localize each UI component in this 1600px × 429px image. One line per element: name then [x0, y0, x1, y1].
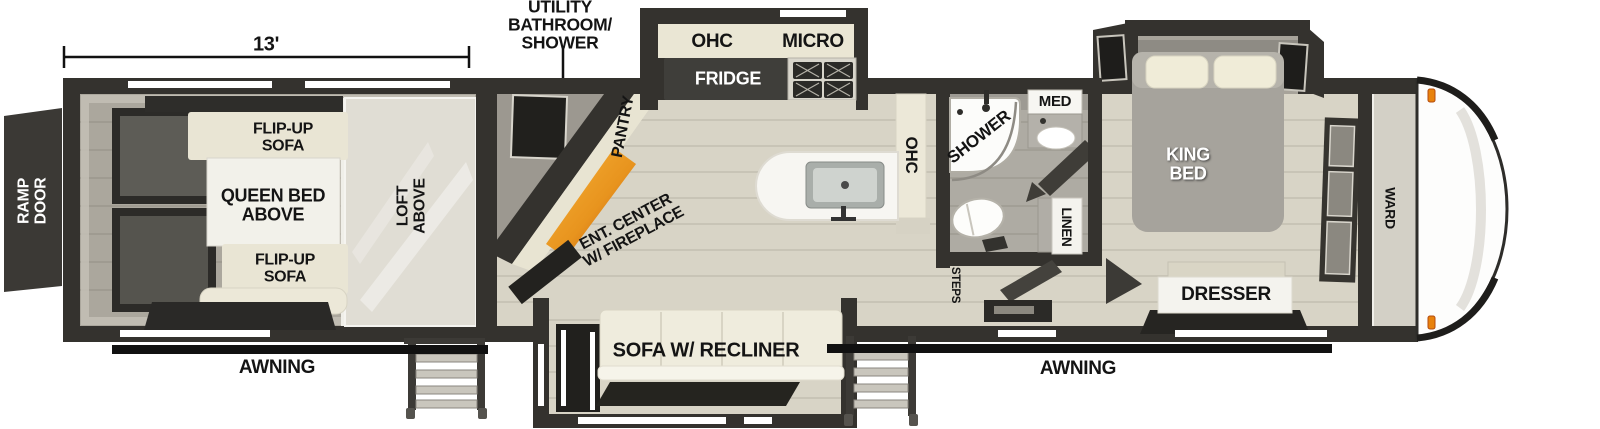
- kitchen-island: [756, 152, 898, 221]
- bedroom-divider-wall: [1088, 78, 1102, 266]
- sofa-shape: [598, 310, 844, 380]
- vanity-sink: [1028, 114, 1082, 149]
- dresser-shape: [1158, 262, 1292, 313]
- floor-hatch: [984, 300, 1052, 322]
- garage-rug: [144, 302, 336, 330]
- stove: [788, 58, 856, 106]
- awning-bar-right: [827, 344, 1332, 353]
- floorplan-drawing: [0, 0, 1600, 429]
- kitchen-counter: [896, 94, 930, 234]
- clearance-light-top: [1428, 89, 1435, 102]
- flip-up-sofa-top-shape: [188, 112, 348, 160]
- living-rug: [596, 382, 800, 406]
- clearance-light-bottom: [1428, 316, 1435, 329]
- king-bed-shape: [1132, 52, 1284, 232]
- bedroom-window: [1319, 117, 1361, 282]
- pillow-left: [1146, 56, 1208, 88]
- rv-floorplan: 13' UTILITY BATHROOM/ SHOWER RAMP DOOR F…: [0, 0, 1600, 429]
- awning-bar-left: [112, 345, 488, 354]
- ohc-micro-cabinet: [658, 24, 854, 58]
- queen-bed-box: [207, 158, 340, 246]
- slideout-window: [556, 324, 600, 412]
- bathroom-wall-left: [936, 78, 950, 268]
- ward-area: [1374, 94, 1418, 326]
- fridge-shape: [664, 58, 788, 100]
- ramp-door: [4, 108, 62, 292]
- slideout-window-slit: [780, 10, 846, 17]
- med-cabinet: [1028, 90, 1082, 114]
- pillow-right: [1214, 56, 1276, 88]
- sofa-slideout: [533, 298, 857, 428]
- front-cap: [1417, 80, 1507, 338]
- bathroom: [936, 78, 1102, 268]
- loft-floor: [341, 98, 476, 326]
- dimension-line: [64, 46, 469, 68]
- garage-divider-wall: [476, 78, 497, 342]
- ward-wall: [1358, 78, 1374, 342]
- kitchen-slideout: [640, 8, 868, 112]
- linen-cabinet: [1038, 198, 1082, 254]
